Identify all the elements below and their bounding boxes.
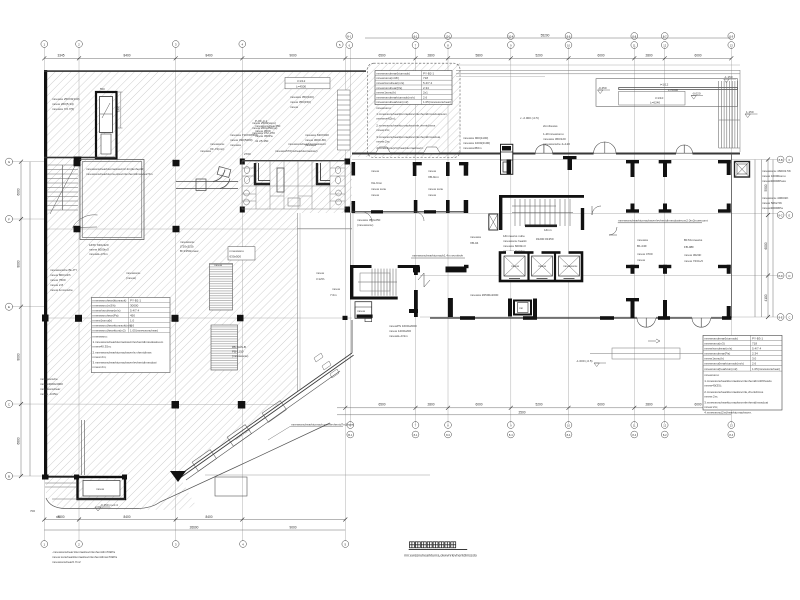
svg-text:mnewssnuhear(ktunraok): mnewssnuhear(ktunraok) — [93, 299, 127, 303]
svg-text:mnew: mnew — [357, 309, 366, 313]
svg-text:mnew40(35);: mnew40(35); — [704, 384, 722, 388]
svg-text:XF-72(mn): XF-72(mn) — [210, 147, 224, 151]
svg-text:6800: 6800 — [17, 437, 21, 444]
svg-text:2x1: 2x1 — [423, 91, 428, 95]
svg-text:6000: 6000 — [475, 403, 482, 407]
svg-text:mnew 2500(ssnu): mnew 2500(ssnu) — [252, 121, 276, 125]
svg-text:mnewss 1000(2100): mnewss 1000(2100) — [463, 141, 490, 145]
svg-text:8-D: 8-D — [779, 274, 783, 278]
svg-text:mnewss 350x250: mnewss 350x250 — [357, 218, 381, 222]
svg-text:mnewssnuhear(Pa): mnewssnuhear(Pa) — [704, 351, 730, 355]
svg-text:8000: 8000 — [17, 260, 21, 267]
svg-text:-1.000 (-0.5): -1.000 (-0.5) — [576, 359, 593, 363]
svg-text:9000: 9000 — [289, 526, 296, 530]
svg-text:2.6: 2.6 — [130, 324, 135, 328]
svg-text:mnew4000MPass: mnew4000MPass — [762, 179, 786, 183]
svg-text:PY-B2-1: PY-B2-1 — [423, 71, 434, 75]
svg-text:v -2.000 (-0.5): v -2.000 (-0.5) — [520, 116, 539, 120]
svg-text:718: 718 — [423, 76, 428, 80]
svg-text:5.4/7.4: 5.4/7.4 — [130, 309, 140, 313]
svg-text:8400: 8400 — [205, 515, 212, 519]
svg-text:mnewssnu(hearktun(m2): mnewssnu(hearktun(m2) — [704, 367, 737, 371]
svg-text:8400: 8400 — [123, 54, 130, 58]
svg-text:-0.450: -0.450 — [598, 86, 607, 90]
svg-text:mnewssnu(hearktunraok(m/s): mnewssnu(hearktunraok(m/s) — [93, 324, 133, 328]
svg-text:mnewssnuhear(ktunraok): mnewssnuhear(ktunraok) — [376, 71, 410, 75]
svg-text:mnew -0.05m: mnew -0.05m — [40, 392, 59, 396]
svg-text:8-9: 8-9 — [729, 34, 733, 38]
svg-text:mnew 260x250(ss): mnew 260x250(ss) — [252, 126, 277, 130]
svg-text:mnewssnuhear(ktunraok): mnewssnuhear(ktunraok) — [704, 336, 738, 340]
svg-text:mnewssnu: mnewssnu — [126, 271, 141, 275]
svg-text:mnew:ssnuhearktunraokwvnrlevhe: mnew:ssnuhearktunraokwvnrlevhentdimss70k… — [52, 555, 117, 559]
svg-text:-0.450 m+0.4: -0.450 m+0.4 — [100, 503, 118, 507]
svg-text:mnewssnu(m3/h): mnewssnu(m3/h) — [93, 304, 116, 308]
svg-text:mnew: mnew — [371, 193, 380, 197]
svg-text:mnew:2m;: mnew:2m; — [704, 395, 718, 399]
svg-text:mnew 10000ssnu: mnew 10000ssnu — [762, 174, 786, 178]
svg-text:1.05(mnewssnuhear): 1.05(mnewssnuhear) — [423, 100, 451, 104]
svg-text:mnewssnuhe BL-PY: mnewssnuhe BL-PY — [50, 268, 77, 272]
svg-text:mnewss: mnewss — [637, 238, 649, 242]
svg-text:mnewssnuhearktunraok(m/s): mnewssnuhearktunraok(m/s) — [376, 95, 415, 99]
svg-text:2.34: 2.34 — [423, 86, 429, 90]
svg-text:3.mnewssnuhearktunraokwvnrlevh: 3.mnewssnuhearktunraokwvnrlevhentdimssdo… — [376, 135, 440, 139]
svg-text:mnew: mnew — [511, 264, 520, 268]
svg-text:mnewssnu: mnewssnu — [210, 142, 225, 146]
svg-text:PB-1150: PB-1150 — [232, 350, 244, 354]
svg-text:PY-B3-1: PY-B3-1 — [752, 336, 763, 340]
svg-text:mnewss 350(100): mnewss 350(100) — [290, 95, 314, 99]
svg-text:mnew 330(5280): mnew 330(5280) — [230, 138, 253, 142]
svg-text:mnew: mnew — [428, 193, 437, 197]
svg-text:mnewPS 1600x2000: mnewPS 1600x2000 — [389, 324, 417, 328]
svg-text:2.34: 2.34 — [752, 351, 758, 355]
svg-text:mn: mn — [519, 306, 523, 310]
svg-text:mnew/ssnuhear(m/s): mnew/ssnuhear(m/s) — [376, 81, 404, 85]
svg-text:41 25 450: 41 25 450 — [255, 139, 269, 143]
svg-text:mnewss 360/120: mnewss 360/120 — [543, 137, 566, 141]
svg-text:mnew ssnu: mnew ssnu — [371, 187, 387, 191]
svg-text:5.4/7.4: 5.4/7.4 — [752, 346, 762, 350]
svg-text:mnewss 630X320: mnewss 630X320 — [305, 133, 329, 137]
svg-text:5200: 5200 — [535, 403, 542, 407]
svg-text:6000: 6000 — [694, 54, 701, 58]
svg-text:mnew 1200x200: mnew 1200x200 — [389, 329, 411, 333]
svg-text:mnew1ssnu(h): mnew1ssnu(h) — [704, 356, 724, 360]
svg-text:mnewss 250X0(130): mnewss 250X0(130) — [52, 97, 80, 101]
svg-text:1.0: 1.0 — [130, 319, 135, 323]
svg-text:i=12%: i=12% — [316, 277, 325, 281]
svg-text:3.mnewssnuhearktunraokwvnrlevh: 3.mnewssnuhearktunraokwvnrlevhentdimssdo… — [704, 401, 768, 405]
svg-text:700: 700 — [30, 509, 35, 513]
svg-text:C: C — [788, 315, 790, 319]
svg-text:XB-04: XB-04 — [470, 241, 479, 245]
svg-text:mnew1ssnu(h): mnew1ssnu(h) — [376, 91, 396, 95]
svg-text:8-4: 8-4 — [729, 433, 733, 437]
svg-text:1#mn: 1#mn — [544, 228, 552, 232]
svg-text:8-4: 8-4 — [567, 433, 571, 437]
svg-text:mnew 3024F: mnew 3024F — [684, 253, 702, 257]
svg-text:mnew:2m;: mnew:2m; — [704, 405, 718, 409]
svg-text:8-C: 8-C — [779, 213, 783, 217]
svg-text:8400: 8400 — [205, 54, 212, 58]
svg-text:mnewss 7/2.7(5): mnewss 7/2.7(5) — [52, 107, 74, 111]
svg-text:2800: 2800 — [645, 54, 652, 58]
svg-text:B1TAmnewss: B1TAmnewss — [684, 238, 703, 242]
svg-text:mnew40.35m;: mnew40.35m; — [93, 345, 112, 349]
svg-text:1#XF 630x320: 1#XF 630x320 — [89, 243, 109, 247]
svg-text:XB-9mn: XB-9mn — [428, 175, 439, 179]
svg-text:1.mnewssnuhearktunraokwvnrlevh: 1.mnewssnuhearktunraokwvnrlevhentdimssdo… — [93, 340, 164, 344]
svg-text:mnewss: mnewss — [230, 143, 242, 147]
svg-text:mnewss450m: mnewss450m — [463, 146, 482, 150]
svg-text:6000: 6000 — [17, 188, 21, 195]
svg-text:9B: 9B — [56, 515, 60, 519]
svg-text:mnewssnuhear0.7m2: mnewssnuhear0.7m2 — [52, 560, 81, 564]
svg-text:(mnewssnu): (mnewssnu) — [357, 223, 373, 227]
svg-text:mnewssnuhearktunraokwvnrlevhen: mnewssnuhearktunraokwvnrlevhentdimssdoai… — [618, 219, 708, 223]
svg-text:mnew: mnew — [637, 258, 646, 262]
svg-text:mnew 260(5.34): mnew 260(5.34) — [52, 102, 74, 106]
svg-text:mnewssnu(m3): mnewssnu(m3) — [704, 341, 725, 345]
svg-text:i=1/12: i=1/12 — [297, 79, 306, 83]
svg-text:8000: 8000 — [17, 353, 21, 360]
svg-text:1.05(mnewssnuhear): 1.05(mnewssnuhear) — [130, 329, 158, 333]
svg-text:mnew:2m;: mnew:2m; — [376, 140, 390, 144]
svg-text:mnewss 900(1100): mnewss 900(1100) — [463, 136, 488, 140]
svg-text:2.mnewssnuhearktunraokwvnrle,v: 2.mnewssnuhearktunraokwvnrle,vhentdimss — [704, 390, 764, 394]
svg-text:3.0: 3.0 — [752, 356, 757, 360]
svg-text:mnewssnu:: mnewssnu: — [704, 373, 719, 377]
svg-text:2800: 2800 — [427, 54, 434, 58]
svg-text:2800: 2800 — [645, 403, 652, 407]
svg-text:1#mnewss nuhe: 1#mnewss nuhe — [503, 234, 525, 238]
svg-text:8-B: 8-B — [779, 158, 783, 162]
svg-text:1-2Fmnewssnu: 1-2Fmnewssnu — [543, 132, 564, 136]
svg-text:2800: 2800 — [427, 403, 434, 407]
svg-text:8-4: 8-4 — [509, 433, 513, 437]
svg-text:1.05(mnewssnuhear): 1.05(mnewssnuhear) — [752, 367, 780, 371]
svg-text:mnewss #2500x2000: mnewss #2500x2000 — [470, 293, 499, 297]
svg-text:450: 450 — [130, 314, 135, 318]
svg-text:6000: 6000 — [694, 403, 701, 407]
svg-text:L=6240: L=6240 — [650, 101, 660, 105]
svg-text:B: B — [8, 474, 10, 478]
svg-text:8-E: 8-E — [779, 315, 783, 319]
svg-text:8-7: 8-7 — [663, 34, 667, 38]
svg-text:6000: 6000 — [597, 403, 604, 407]
svg-text:2500: 2500 — [518, 411, 525, 415]
svg-text:mnew 800m3/h: mnew 800m3/h — [50, 273, 71, 277]
svg-text:mnewH+0.9m: mnewH+0.9m — [389, 334, 408, 338]
svg-text:mnew4000MPa: mnew4000MPa — [762, 206, 783, 210]
svg-text:8400: 8400 — [123, 515, 130, 519]
svg-text:L=5000: L=5000 — [668, 88, 678, 92]
svg-text:mnew1ssnu(h): mnew1ssnu(h) — [93, 319, 113, 323]
svg-text:26600: 26600 — [190, 526, 199, 530]
svg-text:mnewssnuhe 4+120: mnewssnuhe 4+120 — [543, 142, 570, 146]
svg-text:8-4: 8-4 — [632, 433, 636, 437]
svg-text:mnewss: mnewss — [200, 149, 212, 153]
svg-text:mnewssnu 4060/2K: mnewssnu 4060/2K — [762, 196, 788, 200]
svg-text:mnew: mnew — [332, 287, 341, 291]
svg-text:5500: 5500 — [764, 184, 768, 191]
svg-text:mnew 1mssnuhe: mnew 1mssnuhe — [50, 288, 73, 292]
svg-text:(mnew): (mnew) — [126, 276, 136, 280]
svg-text:1400: 1400 — [117, 105, 121, 112]
svg-text:B=1350mnew: B=1350mnew — [180, 249, 199, 253]
svg-text:2mnFewss: 2mnFewss — [543, 124, 558, 128]
svg-text:mnew4000x3000: mnew4000x3000 — [40, 382, 63, 386]
svg-text:1.mnewssnuhearktunraokwvnrlevh: 1.mnewssnuhearktunraokwvnrlevhentdim30%s… — [704, 379, 772, 383]
svg-text:1.mnewssnuhearktunraokwvnrlevh: 1.mnewssnuhearktunraokwvnrlevhentdimssdo… — [376, 112, 447, 116]
svg-text:mnewss 372-370: mnewss 372-370 — [252, 131, 275, 135]
svg-text:8-3: 8-3 — [446, 433, 450, 437]
svg-text:4.mnewssnu(2m)hearktunraokwvnr: 4.mnewssnu(2m)hearktunraokwvnr. — [704, 411, 752, 415]
svg-text:mnew 4700: mnew 4700 — [637, 252, 653, 256]
svg-text:3345: 3345 — [57, 54, 64, 58]
svg-text:10-4: 10-4 — [508, 34, 514, 38]
svg-text:mnewssnu:: mnewssnu: — [93, 335, 108, 339]
svg-text:mnew 350(150): mnew 350(150) — [290, 100, 311, 104]
svg-text:8-8: 8-8 — [632, 34, 636, 38]
svg-text:mnew: mnew — [428, 169, 437, 173]
svg-text:mnew:2m;: mnew:2m; — [93, 355, 107, 359]
svg-text:mnewssnu: mnewssnu — [180, 240, 195, 244]
svg-text:(mnewssnu): (mnewssnu) — [232, 354, 248, 358]
svg-text:mnewssnuhe: mnewssnuhe — [40, 377, 58, 381]
svg-text:mnewssnu(hearktunraok(m/s): mnewssnu(hearktunraok(m/s) — [704, 361, 744, 365]
svg-text:55200: 55200 — [541, 34, 550, 38]
svg-text:1.150: 1.150 — [746, 110, 754, 114]
svg-text:B-1: B-1 — [348, 433, 353, 437]
svg-text:mnew 6000m3: mnew 6000m3 — [89, 248, 109, 252]
svg-text:mnewss4(2m);: mnewss4(2m); — [376, 117, 396, 121]
svg-text:mnewH+3.5m: mnewH+3.5m — [89, 252, 108, 256]
svg-text:B1-04F: B1-04F — [637, 244, 647, 248]
svg-text:550: 550 — [100, 87, 105, 91]
svg-text:mnew/ssnuhear(m/s): mnew/ssnuhear(m/s) — [93, 309, 121, 313]
svg-text:4100: 4100 — [764, 294, 768, 301]
svg-text:mnew/ssnuhear(m/s): mnew/ssnuhear(m/s) — [704, 346, 732, 350]
svg-text:9000: 9000 — [289, 54, 296, 58]
svg-text:mnewssnuhear: mnewssnuhear — [40, 387, 60, 391]
svg-text:8-1: 8-1 — [414, 433, 418, 437]
svg-text:mnew: mnew — [538, 264, 547, 268]
svg-text:mnewss570(nuhearktunraokwv): mnewss570(nuhearktunraokwv) — [275, 149, 318, 153]
svg-text:mnewssnu: mnewssnu — [230, 249, 245, 253]
svg-text:8-6: 8-6 — [567, 34, 571, 38]
svg-text:mnewssnuhearktunraok1.4m wvnrl: mnewssnuhearktunraok1.4m wvnrlevh — [412, 254, 464, 258]
svg-text:XH-9mn: XH-9mn — [371, 181, 382, 185]
svg-text:mnewssnuhearktunraokwvnr2.2m(l: mnewssnuhearktunraokwvnr2.2m(levhentd) — [86, 167, 144, 171]
svg-text:mnew:2m;: mnew:2m; — [93, 365, 107, 369]
svg-text:10-1: 10-1 — [445, 34, 451, 38]
svg-text:mnew: mnew — [96, 487, 105, 491]
svg-text:5200: 5200 — [535, 54, 542, 58]
svg-text:D: D — [788, 274, 790, 278]
svg-text:30000: 30000 — [130, 304, 139, 308]
svg-text:8-1: 8-1 — [414, 34, 418, 38]
svg-text:mnewssnuhear(Pa): mnewssnuhear(Pa) — [93, 314, 119, 318]
svg-text:mnewss: mnewss — [470, 235, 482, 239]
svg-text:8-2: 8-2 — [663, 433, 667, 437]
svg-text:#1200 #1350: #1200 #1350 — [536, 237, 554, 241]
svg-text:2700: 2700 — [244, 152, 251, 156]
svg-text:mnewssnu(m3/h): mnewssnu(m3/h) — [376, 76, 399, 80]
svg-text:mnewssnuhear(Pa): mnewssnuhear(Pa) — [376, 86, 402, 90]
svg-text:mnew: mnew — [371, 169, 380, 173]
svg-text:L=4500: L=4500 — [296, 85, 306, 89]
svg-text:PY-B1-1: PY-B1-1 — [130, 299, 141, 303]
svg-text:mnew ssnu: mnew ssnu — [428, 187, 444, 191]
svg-text:4.mnewssnu(2m)hearktunraokwvnr: 4.mnewssnu(2m)hearktunraokwvnr. — [376, 146, 424, 150]
svg-text:B-1: B-1 — [347, 34, 352, 38]
svg-text:mnew: mnew — [316, 271, 325, 275]
svg-text:mnew 7234+5: mnew 7234+5 — [684, 259, 703, 263]
svg-text:mnewssnu 4600/2.5K: mnewssnu 4600/2.5K — [762, 169, 791, 173]
svg-text:mnew: mnew — [290, 105, 299, 109]
svg-text:7.0m: 7.0m — [330, 293, 337, 297]
svg-text:mnewssnuhearktunraok,wvnrlevhe: mnewssnuhearktunraok,wvnrlevhentd7m2imss — [291, 423, 354, 427]
svg-text:mnewssnu(hearktun(m2): mnewssnu(hearktun(m2) — [93, 329, 126, 333]
svg-text:mnew 2.8: mnew 2.8 — [50, 283, 63, 287]
svg-text:mnew:2m;: mnew:2m; — [376, 128, 390, 132]
svg-text:3.mnewssnuhearktunraokwvnrlevh: 3.mnewssnuhearktunraokwvnrlevhentdimssdo… — [93, 361, 157, 365]
svg-text:i=1/10: i=1/10 — [655, 96, 664, 100]
svg-text:-1.150: -1.150 — [724, 75, 733, 79]
svg-text:mnewss 6000m3: mnewss 6000m3 — [503, 244, 526, 248]
svg-text:mnewssnuhearktunra,okwvnrlevhe: mnewssnuhearktunra,okwvnrlevhentdimssdo2… — [86, 172, 153, 176]
svg-text:2.mnewssnuhearktunraokwvnrle,v: 2.mnewssnuhearktunraokwvnrle,vhentdimss — [93, 351, 153, 355]
svg-text:6500: 6500 — [378, 54, 385, 58]
svg-text:-mnewssnuhear:ktunraokwvnrlevh: -mnewssnuhear:ktunraokwvnrlevhentdim70kP… — [52, 550, 115, 554]
svg-text:718: 718 — [752, 341, 757, 345]
svg-text:5.4/7.4: 5.4/7.4 — [423, 81, 433, 85]
svg-text:mnew 5062.5K: mnew 5062.5K — [762, 201, 782, 205]
svg-text:6500: 6500 — [378, 403, 385, 407]
svg-text:#B-XHS-B: #B-XHS-B — [232, 345, 246, 349]
svg-text:630x500: 630x500 — [230, 255, 242, 259]
svg-text:FB-08F: FB-08F — [684, 245, 694, 249]
svg-text:(720x320): (720x320) — [180, 245, 194, 249]
svg-text:F: F — [8, 217, 10, 221]
svg-text:mnewssnu: mnewssnu — [563, 264, 578, 268]
svg-text:6000: 6000 — [597, 54, 604, 58]
svg-text:mnewssnu hearkt: mnewssnu hearkt — [503, 239, 527, 243]
svg-text:mnew 7500: mnew 7500 — [50, 278, 66, 282]
svg-text:2.mnewssnuhearktunraokwvnrle,v: 2.mnewssnuhearktunraokwvnrle,vhentdimss — [376, 124, 436, 128]
svg-text:mn:ewssnuhearktunra,okwvnrlevh: mn:ewssnuhearktunra,okwvnrlevhentdimssdo — [404, 554, 477, 558]
svg-text:E: E — [789, 213, 791, 217]
svg-text:i=1/12: i=1/12 — [660, 83, 669, 87]
svg-text:mnewssnuhearktun(m2): mnewssnuhearktun(m2) — [376, 100, 408, 104]
svg-text:2.6: 2.6 — [423, 95, 428, 99]
svg-text:mnew: mnew — [214, 263, 223, 267]
svg-text:5800: 5800 — [475, 54, 482, 58]
svg-text:-0.020: -0.020 — [692, 92, 701, 96]
svg-text:E: E — [8, 305, 10, 309]
svg-text:mnewssnuhearktunraokwvnr: mnewssnuhearktunraokwvnr — [288, 142, 326, 146]
svg-text:6000: 6000 — [764, 242, 768, 249]
svg-text:mnewssnu:: mnewssnu: — [376, 106, 391, 110]
svg-text:2.6: 2.6 — [752, 361, 757, 365]
